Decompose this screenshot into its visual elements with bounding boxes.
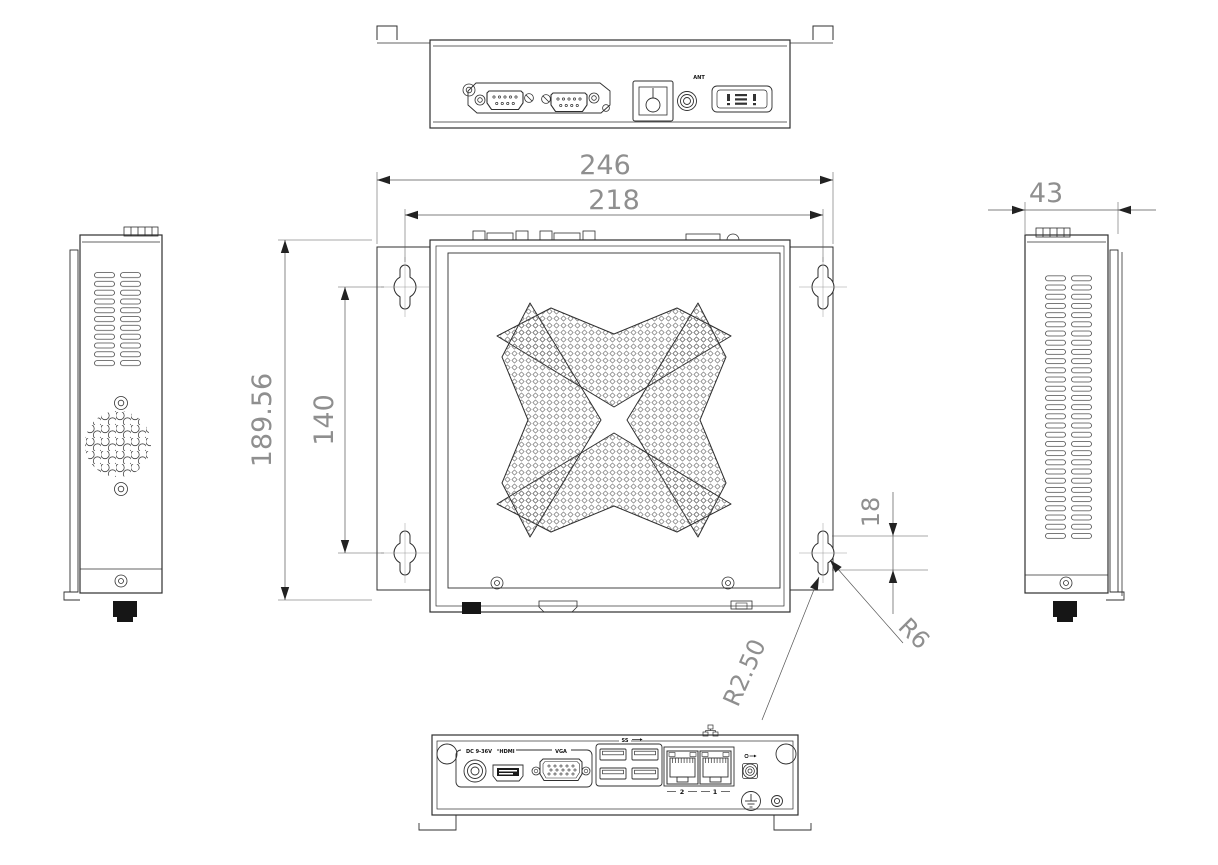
usb-label: SS — [622, 738, 629, 744]
view-top — [377, 231, 847, 614]
dim-mount-depth: 140 — [309, 394, 340, 446]
hdmi-label: HDMI — [499, 749, 514, 755]
dimension-drawing: ANT — [0, 0, 1218, 865]
bracket-flange-left — [70, 250, 78, 592]
bracket-wing-left — [377, 26, 397, 40]
lan2-number: 2 — [680, 788, 685, 796]
dim-side-width: 43 — [1029, 178, 1063, 209]
lan-icon — [703, 725, 718, 736]
view-front-panel — [419, 725, 811, 830]
dim-mount-width: 218 — [588, 185, 640, 216]
vga-label: VGA — [555, 749, 567, 755]
dim-slot-length: 18 — [857, 497, 885, 528]
dim-radius-large: R6 — [893, 612, 935, 654]
bracket-foot-left — [419, 815, 456, 830]
lan1-number: 1 — [713, 788, 718, 796]
side-vents-left — [92, 271, 144, 367]
bracket-flange-right — [1110, 250, 1118, 592]
antenna-label: ANT — [693, 75, 705, 81]
rear-connector-silhouettes — [473, 231, 739, 240]
dc-label: DC 9-36V — [466, 749, 492, 755]
dim-overall-width: 246 — [579, 150, 631, 181]
view-right-side — [1025, 228, 1124, 622]
front-chassis — [432, 735, 798, 815]
view-rear-panel — [377, 26, 833, 128]
side-vents-right — [1044, 274, 1096, 542]
r6-leader — [830, 560, 903, 643]
bracket-wing-right — [813, 26, 833, 40]
chassis-body — [430, 240, 790, 612]
drawing-canvas: ANT — [0, 0, 1218, 865]
dim-radius-small: R2.50 — [718, 635, 772, 710]
bracket-foot-right — [774, 815, 811, 830]
bottom-connector-tab-right — [1053, 601, 1077, 617]
speaker-grille — [85, 411, 151, 477]
view-left-side — [64, 227, 162, 622]
dim-overall-depth: 189.56 — [247, 373, 278, 467]
bottom-connector-tab — [113, 601, 137, 617]
